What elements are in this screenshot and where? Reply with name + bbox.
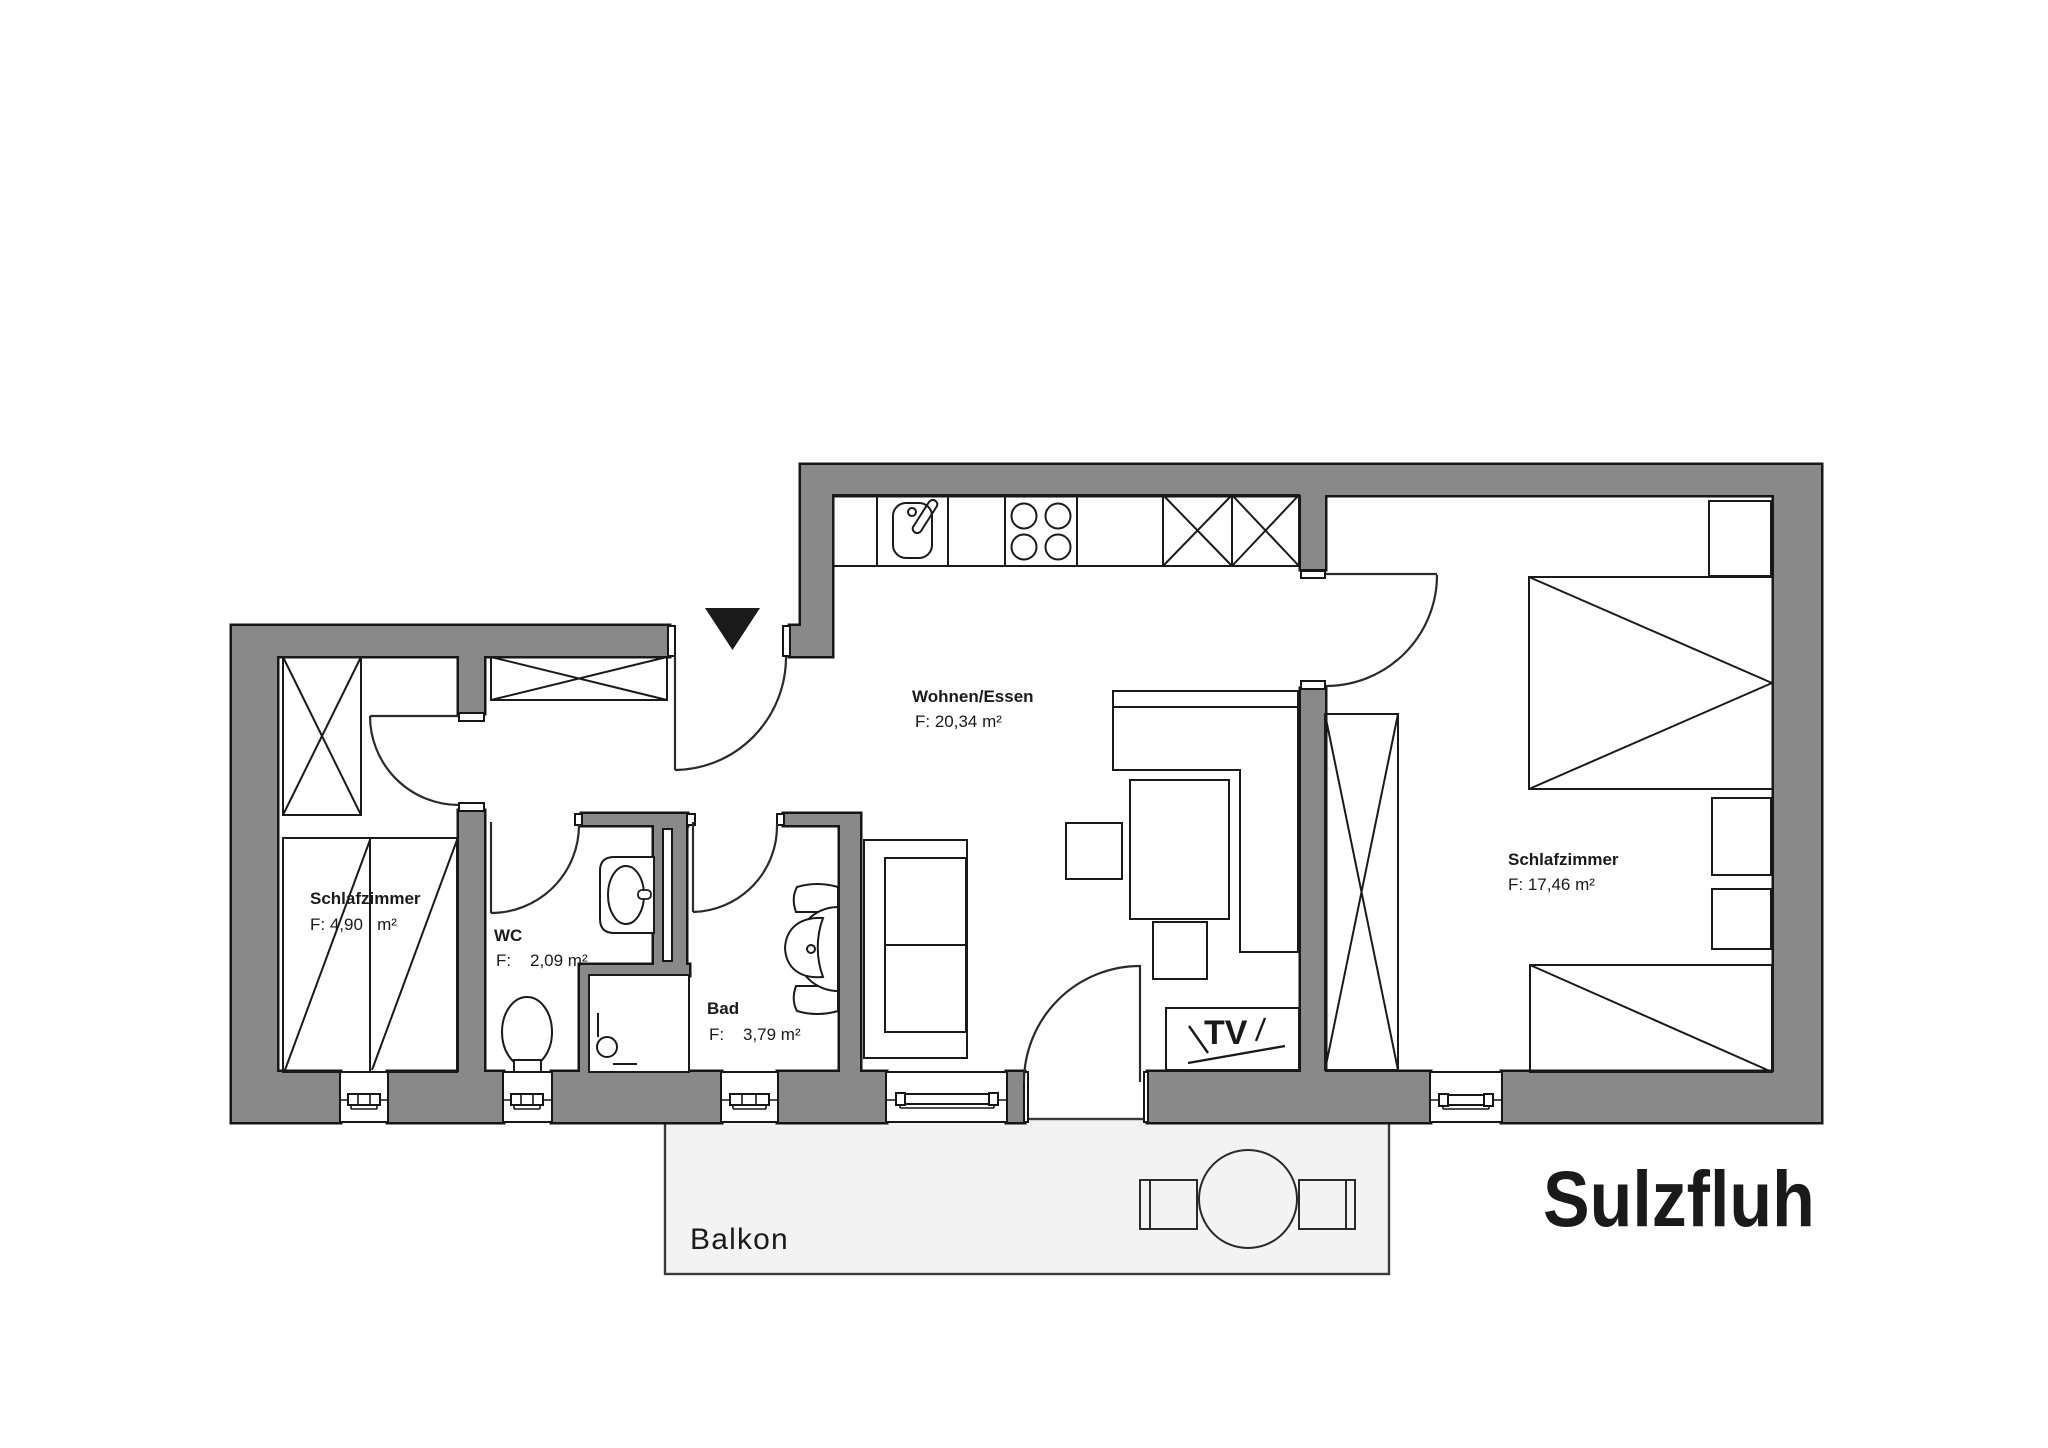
svg-text:Bad: Bad: [707, 999, 739, 1018]
svg-text:Schlafzimmer: Schlafzimmer: [1508, 850, 1619, 869]
svg-text:WC: WC: [494, 926, 522, 945]
svg-text:TV: TV: [1204, 1014, 1248, 1052]
svg-text:Wohnen/Essen: Wohnen/Essen: [912, 687, 1034, 706]
svg-text:Balkon: Balkon: [690, 1223, 789, 1256]
svg-text:F: 20,34 m²: F: 20,34 m²: [915, 712, 1002, 731]
svg-text:F: 3,79 m²: F: 3,79 m²: [709, 1025, 801, 1044]
svg-text:Sulzfluh: Sulzfluh: [1543, 1154, 1815, 1243]
svg-text:F: 17,46 m²: F: 17,46 m²: [1508, 875, 1595, 894]
svg-text:F: 4,90 m²: F: 4,90 m²: [310, 915, 397, 934]
svg-text:F: 2,09 m²: F: 2,09 m²: [496, 951, 588, 970]
svg-text:Schlafzimmer: Schlafzimmer: [310, 889, 421, 908]
